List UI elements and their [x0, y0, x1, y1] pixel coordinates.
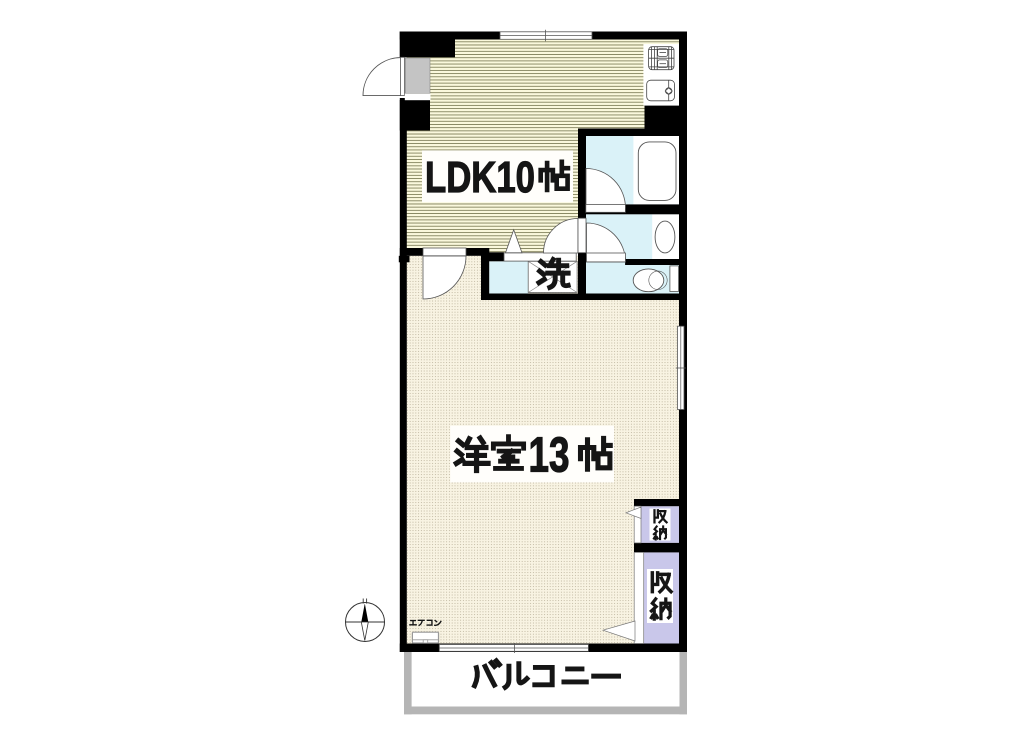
svg-text:13: 13 [529, 429, 570, 483]
svg-text:LDK10: LDK10 [425, 153, 535, 202]
